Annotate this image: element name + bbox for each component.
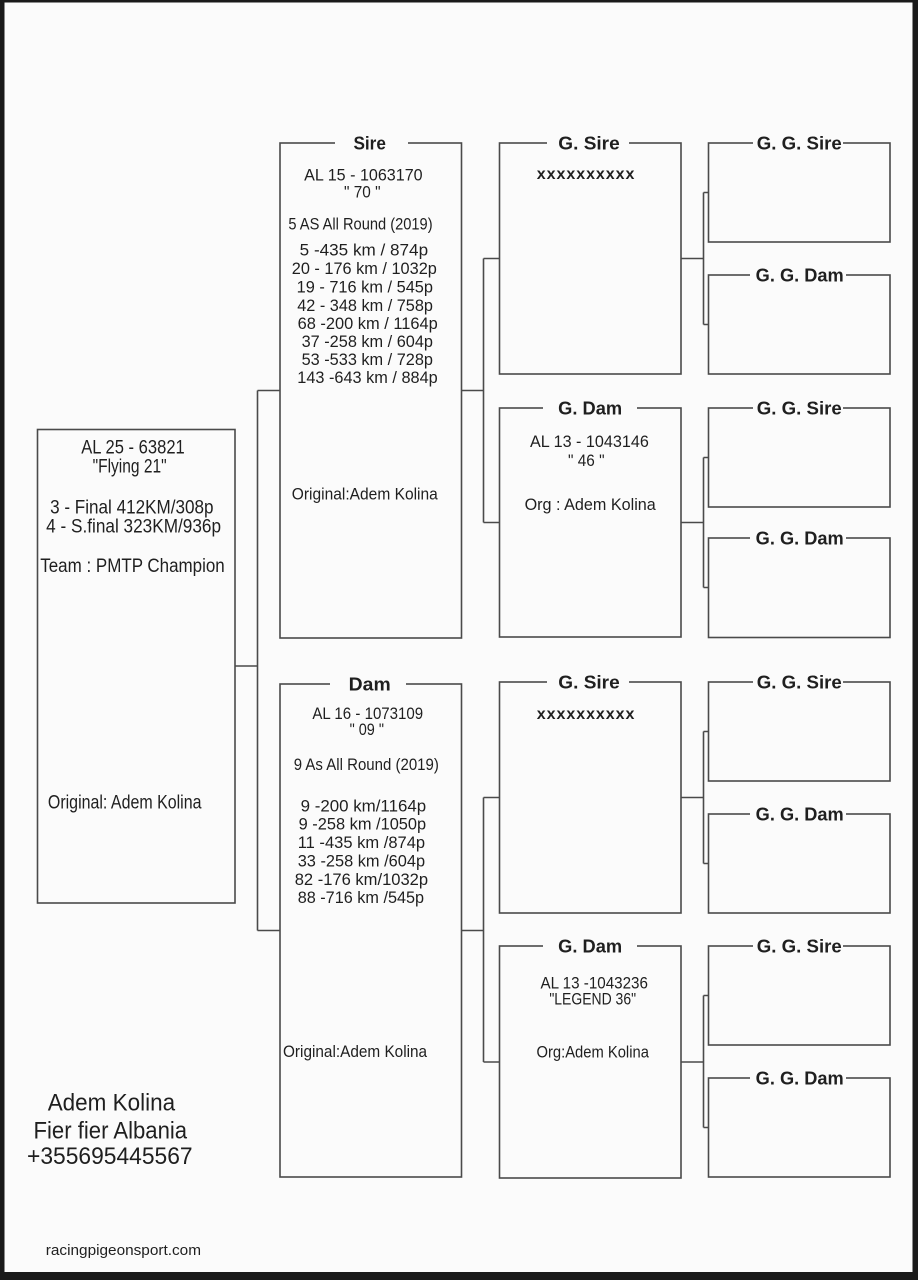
svg-text:20 - 176 km / 1032p: 20 - 176 km / 1032p (292, 259, 437, 278)
svg-text:G. G. Dam: G. G. Dam (756, 1069, 844, 1089)
svg-text:" 46 ": " 46 " (568, 451, 605, 470)
svg-text:9 -200 km/1164p: 9 -200 km/1164p (301, 796, 427, 815)
svg-text:19 - 716 km / 545p: 19 - 716 km / 545p (297, 277, 433, 296)
svg-text:33 -258 km /604p: 33 -258 km /604p (298, 851, 425, 870)
svg-text:Sire: Sire (353, 134, 386, 154)
svg-text:G. Sire: G. Sire (558, 134, 619, 154)
svg-text:" 70 ": " 70 " (344, 183, 381, 202)
svg-text:3 - Final 412KM/308p: 3 - Final 412KM/308p (50, 498, 213, 519)
svg-text:" 09 ": " 09 " (350, 720, 384, 739)
svg-text:82 -176 km/1032p: 82 -176 km/1032p (295, 870, 428, 889)
svg-text:xxxxxxxxxx: xxxxxxxxxx (537, 166, 635, 183)
svg-text:37 -258 km / 604p: 37 -258 km / 604p (302, 332, 433, 351)
svg-text:G. G. Dam: G. G. Dam (756, 266, 844, 286)
svg-text:G. G. Sire: G. G. Sire (757, 937, 842, 957)
svg-text:4 - S.final 323KM/936p: 4 - S.final 323KM/936p (46, 517, 221, 538)
svg-text:Original:Adem Kolina: Original:Adem Kolina (283, 1042, 428, 1061)
svg-text:Original:Adem Kolina: Original:Adem Kolina (292, 485, 438, 504)
svg-text:"LEGEND 36": "LEGEND 36" (549, 990, 636, 1009)
svg-text:+355695445567: +355695445567 (27, 1143, 193, 1170)
svg-text:Org:Adem Kolina: Org:Adem Kolina (537, 1042, 650, 1061)
svg-text:Org : Adem Kolina: Org : Adem Kolina (525, 495, 657, 514)
svg-text:G. G. Sire: G. G. Sire (757, 399, 842, 419)
svg-text:143 -643 km / 884p: 143 -643 km / 884p (297, 368, 438, 387)
svg-text:9 As All Round (2019): 9 As All Round (2019) (294, 755, 439, 774)
svg-text:AL 13 - 1043146: AL 13 - 1043146 (530, 432, 649, 451)
svg-text:G. Dam: G. Dam (558, 399, 622, 419)
svg-text:68 -200 km / 1164p: 68 -200 km / 1164p (298, 314, 438, 333)
svg-text:xxxxxxxxxx: xxxxxxxxxx (537, 706, 635, 723)
svg-text:Dam: Dam (349, 675, 391, 695)
svg-text:42 - 348 km / 758p: 42 - 348 km / 758p (297, 296, 433, 315)
svg-text:11 -435 km /874p: 11 -435 km /874p (298, 833, 425, 852)
svg-text:"Flying 21": "Flying 21" (93, 457, 167, 478)
svg-text:G. G. Sire: G. G. Sire (757, 134, 842, 154)
svg-text:AL 25 - 63821: AL 25 - 63821 (81, 438, 185, 459)
svg-text:Adem Kolina: Adem Kolina (48, 1090, 176, 1117)
svg-text:Fier fier Albania: Fier fier Albania (34, 1117, 188, 1144)
svg-text:5 -435 km / 874p: 5 -435 km / 874p (300, 241, 428, 260)
svg-text:G. G. Dam: G. G. Dam (756, 529, 844, 549)
svg-text:G. G. Dam: G. G. Dam (756, 805, 844, 825)
svg-text:5 AS All Round (2019): 5 AS All Round (2019) (288, 214, 432, 233)
svg-text:88 -716 km /545p: 88 -716 km /545p (298, 888, 424, 907)
svg-text:Original: Adem Kolina: Original: Adem Kolina (48, 793, 202, 814)
svg-text:G. G. Sire: G. G. Sire (757, 673, 842, 693)
svg-text:G. Dam: G. Dam (558, 937, 622, 957)
svg-text:Team : PMTP Champion: Team : PMTP Champion (40, 556, 225, 577)
svg-text:9 -258 km /1050p: 9 -258 km /1050p (299, 815, 427, 834)
svg-text:53 -533 km / 728p: 53 -533 km / 728p (302, 350, 433, 369)
svg-text:racingpigeonsport.com: racingpigeonsport.com (46, 1242, 201, 1259)
svg-text:G. Sire: G. Sire (558, 673, 619, 693)
